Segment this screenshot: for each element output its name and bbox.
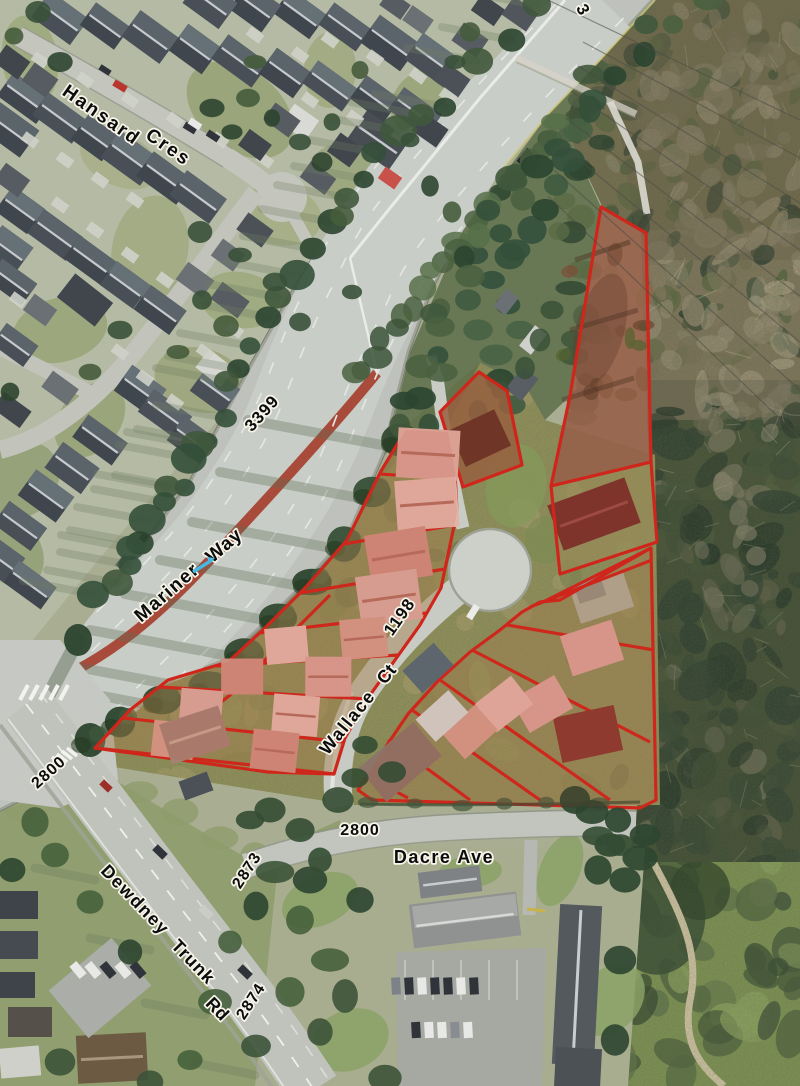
svg-text:2800: 2800	[340, 822, 380, 839]
svg-text:Dacre Ave: Dacre Ave	[394, 847, 494, 867]
